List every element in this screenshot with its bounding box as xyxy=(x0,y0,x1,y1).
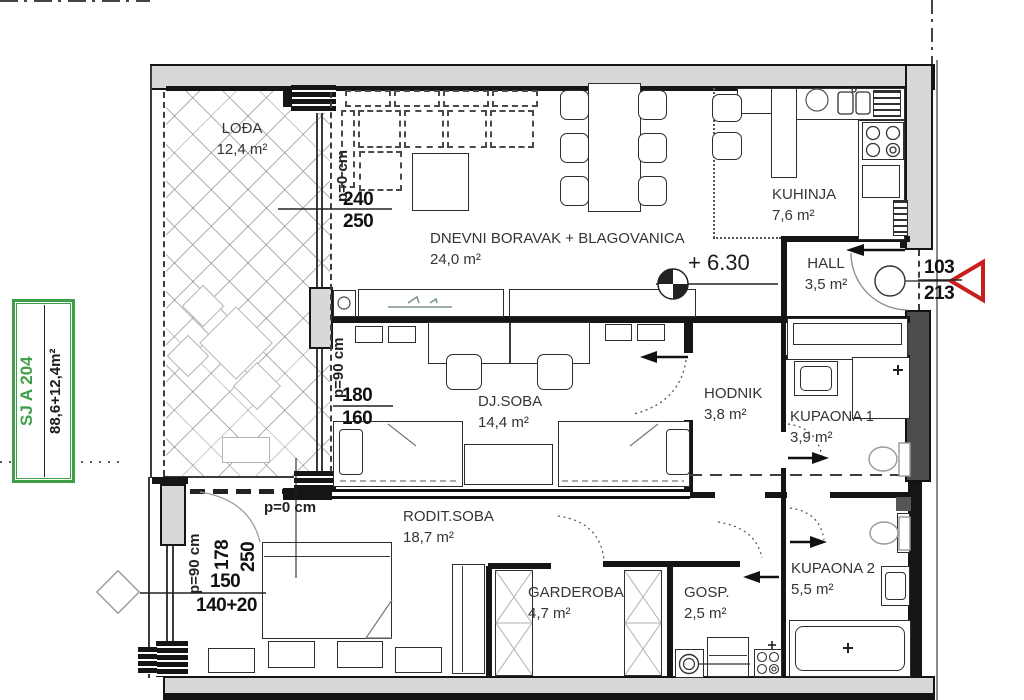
door-arrow-djsoba xyxy=(640,351,688,363)
dim-entry-width: 103 xyxy=(924,258,954,277)
room-area: 7,6 m² xyxy=(772,205,836,226)
dim-dj-window-parapet: p=90 cm xyxy=(330,320,347,398)
dim-balcony-parapet: p=0 cm xyxy=(334,126,351,202)
door-arrow-gosp xyxy=(743,571,779,583)
floor-plan: LOĐA 12,4 m² DNEVNI BORAVAK + BLAGOVANIC… xyxy=(0,0,1024,700)
dim-rodit-window-width: 150 xyxy=(210,572,240,591)
room-name: GOSP. xyxy=(684,582,730,603)
unit-badge-divider xyxy=(44,305,45,477)
room-label-djsoba: DJ.SOBA 14,4 m² xyxy=(478,391,542,433)
room-name: KUPAONA 1 xyxy=(790,406,874,427)
room-area: 24,0 m² xyxy=(430,249,685,270)
dim-rodit-door-width: 178 xyxy=(213,518,232,570)
room-name: RODIT.SOBA xyxy=(403,506,494,527)
level-value: + 6.30 xyxy=(688,250,750,276)
door-arrow-kupaona1 xyxy=(788,452,829,464)
door-arc-djsoba xyxy=(634,360,686,414)
dim-rodit-door-height: 250 xyxy=(239,516,258,572)
room-name: DNEVNI BORAVAK + BLAGOVANICA xyxy=(430,228,685,249)
room-name: GARDEROBA xyxy=(528,582,624,603)
plus-mark xyxy=(893,365,903,375)
room-area: 4,7 m² xyxy=(528,603,624,624)
room-area: 3,9 m² xyxy=(790,427,874,448)
door-arc-kupaona2 xyxy=(790,508,824,540)
toilet-icon xyxy=(869,443,910,476)
sink-icon xyxy=(838,88,870,114)
dim-entry-height: 213 xyxy=(924,284,954,303)
room-name: HALL xyxy=(796,253,856,274)
door-arrow-kupaona2 xyxy=(790,536,827,548)
room-area: 5,5 m² xyxy=(791,579,875,600)
toilet-icon xyxy=(870,517,910,550)
kitchen-hob-icon xyxy=(806,89,828,111)
dim-balcony-height: 250 xyxy=(343,212,373,231)
unit-badge: SJ A 204 88,6+12,4m² xyxy=(12,299,75,483)
dim-rodit-window-height: 140+20 xyxy=(196,596,257,615)
door-arc-gosp xyxy=(718,522,762,558)
unit-badge-code: SJ A 204 xyxy=(17,306,44,476)
room-label-kuhinja: KUHINJA 7,6 m² xyxy=(772,184,836,226)
room-name: HODNIK xyxy=(704,383,762,404)
room-area: 3,8 m² xyxy=(704,404,762,425)
stove-burners-icon xyxy=(867,127,900,157)
room-label-kupaona2: KUPAONA 2 5,5 m² xyxy=(791,558,875,600)
room-label-garderoba: GARDEROBA 4,7 m² xyxy=(528,582,624,624)
dim-rodit-window-parapet: p=90 cm xyxy=(186,522,203,594)
room-label-lodja: LOĐA 12,4 m² xyxy=(192,118,292,160)
room-area: 14,4 m² xyxy=(478,412,542,433)
appliance-burners-icon xyxy=(758,653,779,674)
room-area: 3,5 m² xyxy=(796,274,856,295)
speaker-icon xyxy=(338,297,350,309)
washer-drum-inner xyxy=(684,659,695,670)
room-name: LOĐA xyxy=(192,118,292,139)
room-area: 18,7 m² xyxy=(403,527,494,548)
entry-marker-icon xyxy=(951,262,983,300)
room-label-roditsoba: RODIT.SOBA 18,7 m² xyxy=(403,506,494,548)
room-label-kupaona1: KUPAONA 1 3,9 m² xyxy=(790,406,874,448)
room-name: KUPAONA 2 xyxy=(791,558,875,579)
room-label-hall: HALL 3,5 m² xyxy=(796,253,856,295)
diamond-reference-icon xyxy=(97,571,139,613)
room-name: DJ.SOBA xyxy=(478,391,542,412)
room-label-hodnik: HODNIK 3,8 m² xyxy=(704,383,762,425)
room-label-dnevni: DNEVNI BORAVAK + BLAGOVANICA 24,0 m² xyxy=(430,228,685,270)
dim-dj-window-height: 160 xyxy=(342,409,372,428)
entry-circle-symbol xyxy=(875,266,905,296)
plus-mark xyxy=(843,643,853,653)
bed-fold-lines xyxy=(340,424,684,638)
plus-mark xyxy=(768,641,776,649)
tv-icon xyxy=(388,297,452,307)
room-name: KUHINJA xyxy=(772,184,836,205)
room-label-gosp: GOSP. 2,5 m² xyxy=(684,582,730,624)
door-arc-garderoba xyxy=(558,516,604,560)
dim-rodit-door-parapet: p=0 cm xyxy=(264,499,316,516)
room-area: 12,4 m² xyxy=(192,139,292,160)
washer-drum-icon xyxy=(680,655,699,674)
room-area: 2,5 m² xyxy=(684,603,730,624)
unit-badge-area: 88,6+12,4m² xyxy=(47,306,72,476)
